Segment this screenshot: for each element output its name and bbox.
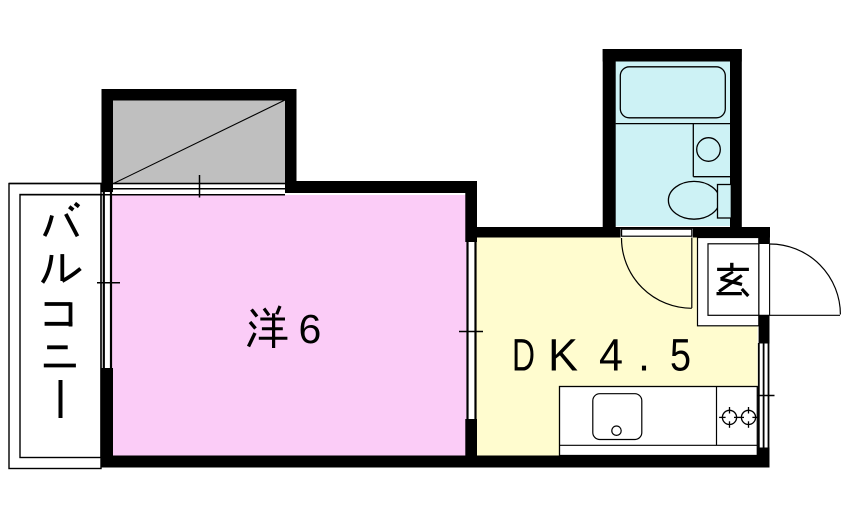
svg-text:6: 6: [299, 306, 322, 352]
svg-text:D: D: [512, 329, 535, 380]
svg-text:K: K: [548, 329, 578, 380]
svg-text:4: 4: [599, 329, 623, 380]
svg-text:.: .: [638, 329, 650, 380]
svg-text:5: 5: [670, 329, 691, 380]
